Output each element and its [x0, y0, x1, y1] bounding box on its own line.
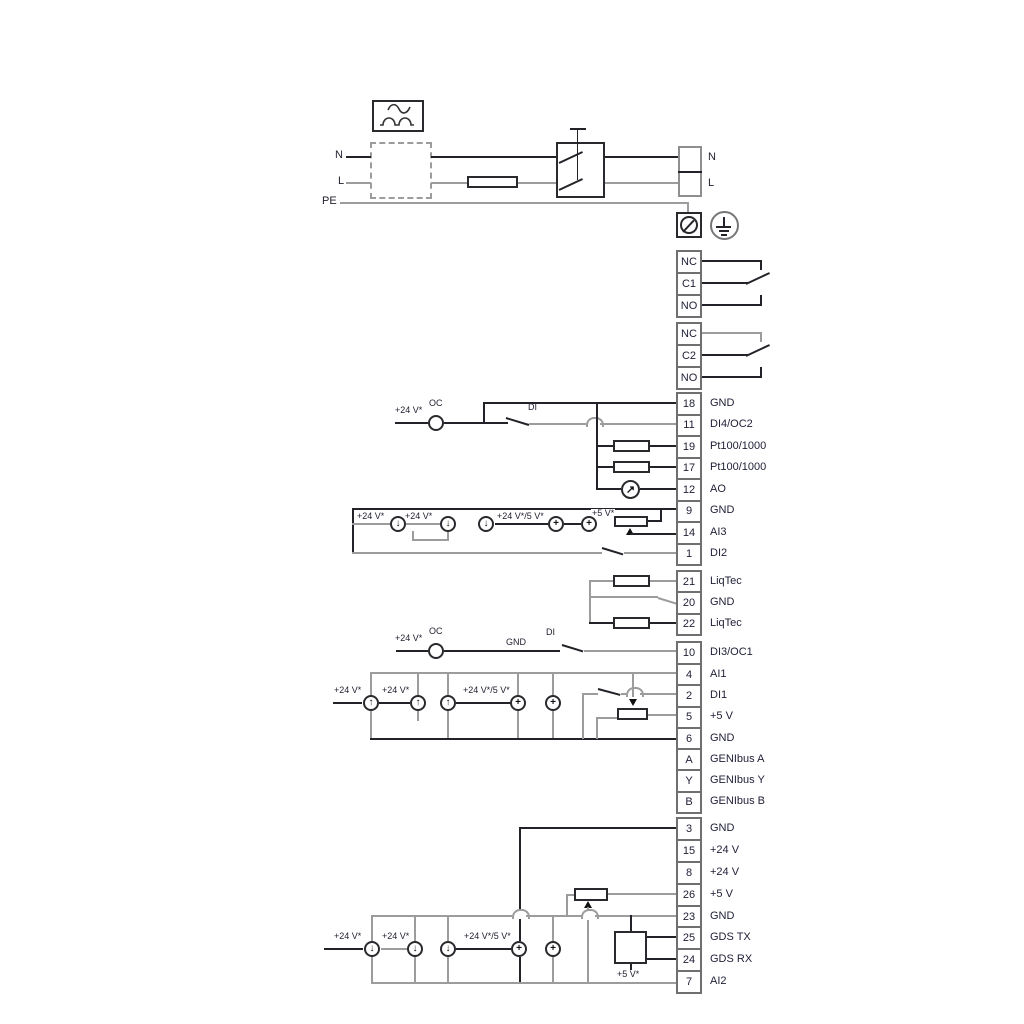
wire-segment: ↓ [370, 944, 375, 954]
wire-segment [412, 539, 449, 541]
terminal-label: GENIbus B [710, 795, 765, 807]
terminal-row: 5+5 V [676, 706, 976, 727]
fuse [467, 176, 518, 188]
wire-segment [650, 466, 676, 468]
wire-segment [324, 948, 363, 950]
wire-segment [388, 105, 410, 113]
liqtec-sensor-1 [613, 575, 650, 587]
wiper-arrow-icon [629, 699, 637, 706]
wire-segment: +24 V* [404, 512, 433, 522]
terminal-row: C2 [676, 344, 976, 366]
wire-segment [596, 717, 617, 719]
wire-segment [647, 958, 676, 960]
wire-segment [608, 893, 676, 895]
di3-terminal-block: 10DI3/OC1 [676, 641, 976, 663]
wire-segment [412, 531, 414, 539]
terminal-row: 15+24 V [676, 839, 976, 861]
voltage-source-icon: + [510, 695, 526, 711]
terminal-label: +24 V [710, 866, 739, 878]
terminal-label: Pt100/1000 [710, 440, 766, 452]
wire-segment [370, 738, 676, 740]
voltage-source-icon: + [511, 941, 527, 957]
terminal-label: GENIbus A [710, 753, 764, 765]
wire-segment [648, 714, 676, 716]
terminal-row: 7AI2 [676, 970, 976, 992]
terminal-row: 20GND [676, 591, 976, 612]
terminal-cell: 21 [676, 570, 702, 593]
current-source-icon: ↑ [363, 695, 379, 711]
wiring-diagram: N L PE N L +24 V* OC DI [0, 0, 1024, 1024]
wire-segment [597, 488, 621, 490]
terminal-label: GND [710, 822, 734, 834]
terminal-label: GDS RX [710, 953, 752, 965]
wire-crossover [512, 909, 530, 919]
terminal-row: 6GND [676, 727, 976, 748]
terminal-cell: 23 [676, 905, 702, 929]
pt100-sensor-2 [613, 461, 650, 473]
n-right-label: N [708, 151, 716, 163]
wire-segment: ↓ [413, 944, 418, 954]
terminal-cell: 25 [676, 926, 702, 950]
terminal-label: GND [710, 596, 734, 608]
terminal-label: DI1 [710, 689, 727, 701]
wire-segment: + [586, 519, 592, 529]
wire-segment: +5 V* [616, 970, 640, 980]
wire-segment [519, 827, 521, 941]
relay1-terminal-block: NCC1NO [676, 250, 976, 316]
wire-segment [444, 650, 560, 652]
di1-switch-blade [598, 688, 621, 696]
terminal-row: 3GND [676, 817, 976, 839]
wire-segment [582, 693, 598, 695]
di3-switch-blade [562, 644, 584, 652]
l-right-label: L [708, 177, 714, 189]
terminal-label: +5 V [710, 888, 733, 900]
terminal-row: 8+24 V [676, 861, 976, 883]
io-terminal-block-lower: 3GND15+24 V8+24 V26+5 V23GND25GDS TX24GD… [676, 817, 976, 992]
wire-segment [596, 717, 598, 739]
di4-switch-blade [506, 417, 530, 426]
wire-segment [483, 402, 676, 404]
terminal-cell: 14 [676, 521, 702, 545]
terminal-cell: Y [676, 769, 702, 792]
terminal-row: 17Pt100/1000 [676, 457, 976, 479]
wire-segment: +24 V* [394, 634, 423, 644]
n-left-label: N [335, 149, 343, 161]
current-source-icon: ↑ [410, 695, 426, 711]
wire-segment [456, 702, 510, 704]
wire-segment [597, 445, 613, 447]
wire-segment [564, 523, 581, 525]
wire-segment [431, 182, 467, 184]
terminal-cell: 3 [676, 817, 702, 841]
terminal-cell: 12 [676, 478, 702, 502]
terminal-label: GENIbus Y [710, 774, 765, 786]
wire-segment: + [550, 944, 556, 954]
terminal-cell: 11 [676, 414, 702, 438]
wire-segment: ↗ [626, 483, 635, 496]
terminal-cell: 26 [676, 883, 702, 907]
wire-segment: +24 V* [356, 512, 385, 522]
voltage-source-icon: + [545, 695, 561, 711]
wire-segment [589, 622, 613, 624]
wire-segment [721, 234, 727, 236]
wire-segment [483, 402, 485, 424]
voltage-source-icon: + [548, 516, 564, 532]
terminal-label: LiqTec [710, 575, 742, 587]
wire-segment [456, 948, 511, 950]
wire-segment: ↑ [446, 698, 451, 708]
oc-output-icon [428, 415, 444, 431]
terminal-row: 19Pt100/1000 [676, 435, 976, 457]
terminal-cell: 18 [676, 392, 702, 416]
wire-segment [395, 422, 428, 424]
wire-segment [526, 915, 582, 917]
terminal-row: 14AI3 [676, 521, 976, 543]
terminal-label: GDS TX [710, 931, 751, 943]
current-source-icon: ↓ [478, 516, 494, 532]
wire-segment [396, 650, 428, 652]
terminal-row: 22LiqTec [676, 613, 976, 634]
terminal-label: LiqTec [710, 617, 742, 629]
terminal-row: AGENIbus A [676, 748, 976, 769]
wire-segment [519, 957, 521, 983]
terminal-label: GND [710, 910, 734, 922]
oc-label: OC [428, 399, 444, 409]
terminal-cell: A [676, 748, 702, 771]
wire-segment: ↓ [446, 944, 451, 954]
wire-segment [380, 118, 414, 125]
wire-segment: +24 V*/5 V* [462, 686, 511, 696]
wire-segment [630, 915, 632, 931]
wire-crossover [626, 687, 644, 697]
wire-segment [444, 422, 508, 424]
potentiometer [614, 516, 648, 527]
wire-segment [584, 650, 676, 652]
wire-segment: +24 V*/5 V* [463, 932, 512, 942]
terminal-cell: NO [676, 294, 702, 318]
terminal-row: 11DI4/OC2 [676, 414, 976, 436]
wire-segment: + [553, 519, 559, 529]
wire-segment: ↑ [369, 698, 374, 708]
liqtec-terminal-block: 21LiqTec20GND22LiqTec [676, 570, 976, 634]
wire-segment [650, 580, 676, 582]
terminal-cell: 8 [676, 861, 702, 885]
wire-segment [431, 156, 556, 158]
current-source-icon: ↑ [440, 695, 456, 711]
terminal-row: 26+5 V [676, 883, 976, 905]
wire-segment [587, 907, 589, 910]
wire-segment: +24 V*/5 V* [496, 512, 545, 522]
emc-filter-box [370, 142, 432, 199]
wire-segment: +24 V* [333, 932, 362, 942]
terminal-cell: 22 [676, 613, 702, 636]
terminal-cell: NO [676, 366, 702, 390]
wire-segment: +24 V* [381, 686, 410, 696]
wire-segment [678, 171, 702, 173]
terminal-cell: C1 [676, 272, 702, 296]
wire-segment: ↓ [396, 519, 401, 529]
terminal-label: GND [710, 504, 734, 516]
wire-segment [370, 672, 676, 674]
terminal-cell: 10 [676, 641, 702, 665]
wire-segment [352, 508, 354, 554]
terminal-cell: 9 [676, 500, 702, 524]
terminal-label: AI2 [710, 975, 727, 987]
wire-segment: OC [428, 627, 444, 637]
wire-segment [723, 217, 725, 226]
wire-segment [570, 128, 586, 130]
wire-segment [495, 523, 548, 525]
wire-segment: +24 V* [333, 686, 362, 696]
wire-segment [650, 445, 676, 447]
terminal-label: Pt100/1000 [710, 461, 766, 473]
terminal-label: +24 V [710, 844, 739, 856]
terminal-label: GND [710, 397, 734, 409]
terminal-cell: 4 [676, 663, 702, 686]
terminal-cell: 6 [676, 727, 702, 750]
wire-segment: +24 V* [381, 932, 410, 942]
ac-supply-icon [374, 102, 422, 130]
terminal-cell: 1 [676, 543, 702, 567]
terminal-row: 12AO [676, 478, 976, 500]
gnd-label: GND [505, 638, 527, 648]
terminal-cell: B [676, 791, 702, 814]
main-switch-box [556, 142, 605, 198]
di2-switch-blade [602, 547, 624, 555]
wire-segment [640, 693, 676, 695]
terminal-label: AO [710, 483, 726, 495]
wire-segment [381, 948, 407, 950]
wire-crossover [586, 417, 604, 427]
voltage-source-icon: + [581, 516, 597, 532]
terminal-row: BGENIbus B [676, 791, 976, 812]
wire-segment [589, 580, 613, 582]
wire-segment [604, 182, 678, 184]
wire-segment [600, 423, 676, 425]
terminal-cell: 24 [676, 948, 702, 972]
pe-label: PE [322, 195, 337, 207]
wire-crossover [581, 909, 599, 919]
wire-segment [371, 982, 676, 984]
wire-segment [529, 423, 586, 425]
terminal-row: 25GDS TX [676, 926, 976, 948]
current-source-icon: ↓ [364, 941, 380, 957]
wire-segment [647, 936, 676, 938]
wire-segment [650, 622, 676, 624]
wire-segment [352, 552, 602, 554]
terminal-label: AI1 [710, 668, 727, 680]
wire-segment [597, 466, 613, 468]
wire-segment [658, 597, 677, 604]
oc-output-icon [428, 643, 444, 659]
wire-segment [566, 894, 568, 916]
wire-segment [519, 827, 676, 829]
wire-segment [340, 202, 689, 204]
terminal-row: 21LiqTec [676, 570, 976, 591]
terminal-row: 24GDS RX [676, 948, 976, 970]
wire-segment [587, 920, 589, 982]
terminal-row: NC [676, 322, 976, 344]
wire-segment: + [550, 698, 556, 708]
potentiometer [617, 708, 648, 720]
v24-label: +24 V* [394, 406, 423, 416]
terminal-cell: C2 [676, 344, 702, 368]
terminal-cell: NC [676, 250, 702, 274]
terminal-row: 10DI3/OC1 [676, 641, 976, 663]
terminal-row: 1DI2 [676, 543, 976, 565]
terminal-row: YGENIbus Y [676, 769, 976, 790]
wire-segment: ↓ [484, 519, 489, 529]
pt100-sensor-1 [613, 440, 650, 452]
wire-segment [346, 156, 371, 158]
wire-segment [589, 596, 658, 598]
ac-supply-box [372, 100, 424, 132]
terminal-row: NO [676, 366, 976, 388]
wire-segment [406, 523, 440, 525]
voltage-source-icon: + [545, 941, 561, 957]
terminal-row: 2DI1 [676, 684, 976, 705]
terminal-cell: 15 [676, 839, 702, 863]
terminal-cell: 19 [676, 435, 702, 459]
wire-segment [582, 693, 584, 739]
wire-segment [352, 508, 676, 510]
liqtec-sensor-2 [613, 617, 650, 629]
terminal-row: 23GND [676, 905, 976, 927]
wire-segment: + [516, 944, 522, 954]
terminal-row: 9GND [676, 500, 976, 522]
wire-segment: ↑ [416, 698, 421, 708]
wire-segment [640, 488, 676, 490]
current-source-icon: ↓ [390, 516, 406, 532]
wire-segment [589, 580, 591, 623]
wire-segment [624, 552, 676, 554]
wire-segment [352, 523, 390, 525]
terminal-label: +5 V [710, 710, 733, 722]
relay2-terminal-block: NCC2NO [676, 322, 976, 388]
terminal-row: C1 [676, 272, 976, 294]
io-terminal-block-mid: 4AI12DI15+5 V6GNDAGENIbus AYGENIbus YBGE… [676, 663, 976, 812]
wire-segment [719, 230, 729, 232]
wire-segment [630, 533, 676, 535]
terminal-cell: 17 [676, 457, 702, 481]
terminal-label: DI3/OC1 [710, 646, 753, 658]
terminal-cell: NC [676, 322, 702, 346]
terminal-row: 4AI1 [676, 663, 976, 684]
terminal-cell: 7 [676, 970, 702, 994]
wire-segment [371, 915, 512, 917]
terminal-label: DI4/OC2 [710, 418, 753, 430]
current-source-icon: ↓ [440, 941, 456, 957]
analog-output-meter-icon: ↗ [621, 480, 640, 499]
terminal-label: DI2 [710, 547, 727, 559]
wire-segment: DI [545, 628, 556, 638]
terminal-cell: 5 [676, 706, 702, 729]
gds-sensor-box [614, 931, 647, 964]
terminal-cell: 2 [676, 684, 702, 707]
wire-segment [632, 672, 634, 697]
potentiometer [574, 888, 608, 901]
wire-segment [333, 702, 362, 704]
wire-segment [648, 520, 661, 522]
terminal-label: GND [710, 732, 734, 744]
l-left-label: L [338, 175, 344, 187]
terminal-row: 18GND [676, 392, 976, 414]
wire-segment: ↓ [446, 519, 451, 529]
wire-segment [518, 182, 556, 184]
terminal-cell: 20 [676, 591, 702, 614]
current-source-icon: ↓ [407, 941, 423, 957]
wire-segment [716, 226, 731, 228]
di-label: DI [527, 403, 538, 413]
wire-segment: + [515, 698, 521, 708]
wire-segment [379, 702, 410, 704]
io-terminal-block-upper: 18GND11DI4/OC219Pt100/100017Pt100/100012… [676, 392, 976, 564]
terminal-row: NO [676, 294, 976, 316]
wire-segment [595, 915, 676, 917]
current-source-icon: ↓ [440, 516, 456, 532]
wire-segment [346, 182, 371, 184]
wire-segment [604, 156, 678, 158]
terminal-row: NC [676, 250, 976, 272]
terminal-label: AI3 [710, 526, 727, 538]
